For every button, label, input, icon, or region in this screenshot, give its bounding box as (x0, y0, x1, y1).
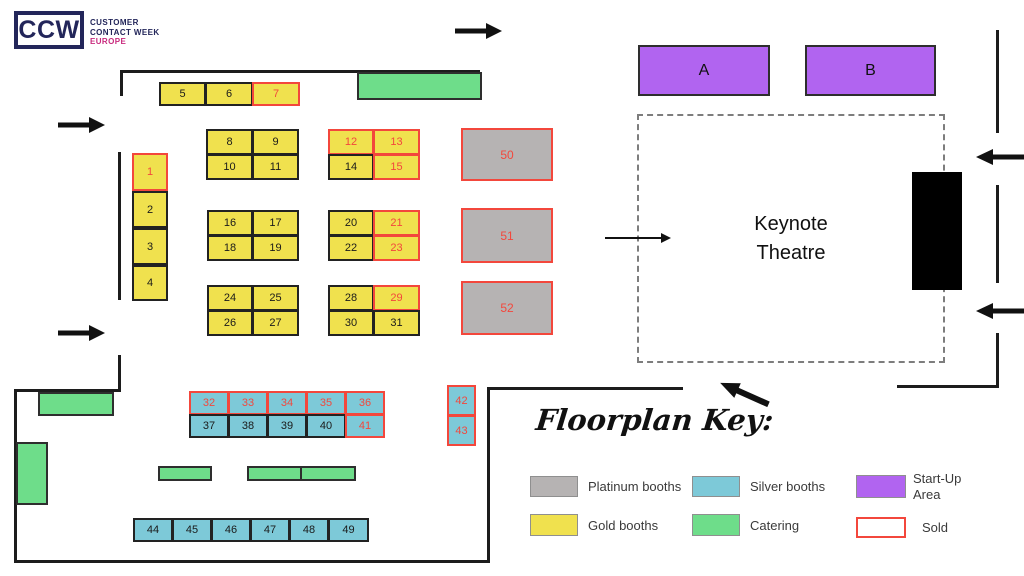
catering-area (16, 442, 48, 505)
booth-48: 48 (289, 518, 329, 542)
catering-area (357, 72, 482, 100)
gold-swatch (530, 514, 578, 536)
catering-area (247, 466, 302, 481)
booth-34: 34 (267, 391, 307, 415)
startup-area-a: A (638, 45, 770, 96)
booth-37: 37 (189, 414, 229, 438)
booth-35: 35 (306, 391, 346, 415)
floorplan: CCW CUSTOMER CONTACT WEEK EUROPE Keynote… (0, 0, 1024, 576)
floorplan-key-title: Floorplan Key: (534, 403, 775, 437)
booth-23: 23 (373, 235, 420, 261)
booth-1: 1 (132, 153, 168, 191)
catering-area (300, 466, 356, 481)
wall-segment (487, 387, 683, 390)
booth-27: 27 (252, 310, 299, 336)
key-label-silver: Silver booths (750, 479, 825, 495)
booth-50: 50 (461, 128, 553, 181)
ccw-logo-text: CUSTOMER CONTACT WEEK EUROPE (90, 18, 160, 47)
catering-area (158, 466, 212, 481)
wall-segment (996, 333, 999, 388)
sold-swatch (856, 517, 906, 538)
booth-7: 7 (252, 82, 300, 106)
key-label-catering: Catering (750, 518, 799, 534)
booth-9: 9 (252, 129, 299, 155)
booth-6: 6 (205, 82, 253, 106)
booth-33: 33 (228, 391, 268, 415)
logo-line-contact-week: CONTACT WEEK (90, 28, 160, 38)
booth-5: 5 (159, 82, 206, 106)
booth-42: 42 (447, 385, 476, 416)
startup-area-a-label: A (699, 62, 710, 80)
booth-10: 10 (206, 154, 253, 180)
booth-49: 49 (328, 518, 369, 542)
stage (912, 172, 962, 290)
booth-11: 11 (252, 154, 299, 180)
wall-segment (120, 70, 123, 96)
wall-segment (996, 30, 999, 133)
booth-20: 20 (328, 210, 374, 236)
booth-36: 36 (345, 391, 385, 415)
booth-30: 30 (328, 310, 374, 336)
booth-22: 22 (328, 235, 374, 261)
booth-18: 18 (207, 235, 253, 261)
startup-area-b: B (805, 45, 936, 96)
booth-38: 38 (228, 414, 268, 438)
booth-8: 8 (206, 129, 253, 155)
key-label-startup: Start-Up Area (913, 471, 983, 503)
key-label-gold: Gold booths (588, 518, 658, 534)
wall-segment (14, 560, 490, 563)
booth-45: 45 (172, 518, 212, 542)
booth-14: 14 (328, 154, 374, 180)
booth-15: 15 (373, 154, 420, 180)
booth-32: 32 (189, 391, 229, 415)
silver-swatch (692, 476, 740, 497)
key-label-platinum: Platinum booths (588, 479, 681, 495)
wall-segment (118, 355, 121, 391)
entrance-arrow-left-upper-icon (58, 116, 106, 134)
booth-39: 39 (267, 414, 307, 438)
booth-43: 43 (447, 415, 476, 446)
booth-47: 47 (250, 518, 290, 542)
ccw-logo-mark: CCW (18, 16, 79, 45)
booth-3: 3 (132, 228, 168, 265)
key-label-sold: Sold (922, 520, 948, 536)
entrance-arrow-right-upper-icon (974, 148, 1024, 166)
ccw-logo: CCW (14, 11, 84, 49)
logo-line-europe: EUROPE (90, 37, 160, 47)
booth-41: 41 (345, 414, 385, 438)
booth-29: 29 (373, 285, 420, 311)
booth-21: 21 (373, 210, 420, 236)
booth-51: 51 (461, 208, 553, 263)
entrance-arrow-top-icon (455, 22, 503, 40)
booth-19: 19 (252, 235, 299, 261)
keynote-theatre-label-line1: Keynote (754, 210, 827, 239)
booth-17: 17 (252, 210, 299, 236)
booth-16: 16 (207, 210, 253, 236)
startup-area-b-label: B (865, 62, 876, 80)
keynote-theatre-area: Keynote Theatre (637, 114, 945, 363)
catering-swatch (692, 514, 740, 536)
startup-swatch (856, 475, 906, 498)
entrance-arrow-left-lower-icon (58, 324, 106, 342)
booth-13: 13 (373, 129, 420, 155)
catering-area (38, 392, 114, 416)
wall-segment (996, 185, 999, 283)
booth-2: 2 (132, 191, 168, 228)
logo-line-customer: CUSTOMER (90, 18, 160, 28)
booth-52: 52 (461, 281, 553, 335)
booth-12: 12 (328, 129, 374, 155)
wall-segment (897, 385, 999, 388)
booth-26: 26 (207, 310, 253, 336)
booth-31: 31 (373, 310, 420, 336)
booth-25: 25 (252, 285, 299, 311)
booth-4: 4 (132, 265, 168, 301)
keynote-entry-arrow-icon (605, 232, 671, 244)
booth-40: 40 (306, 414, 346, 438)
keynote-theatre-label-line2: Theatre (757, 239, 826, 268)
entrance-arrow-right-lower-icon (974, 302, 1024, 320)
booth-46: 46 (211, 518, 251, 542)
booth-44: 44 (133, 518, 173, 542)
booth-24: 24 (207, 285, 253, 311)
wall-segment (487, 387, 490, 563)
booth-28: 28 (328, 285, 374, 311)
platinum-swatch (530, 476, 578, 497)
wall-segment (118, 152, 121, 300)
